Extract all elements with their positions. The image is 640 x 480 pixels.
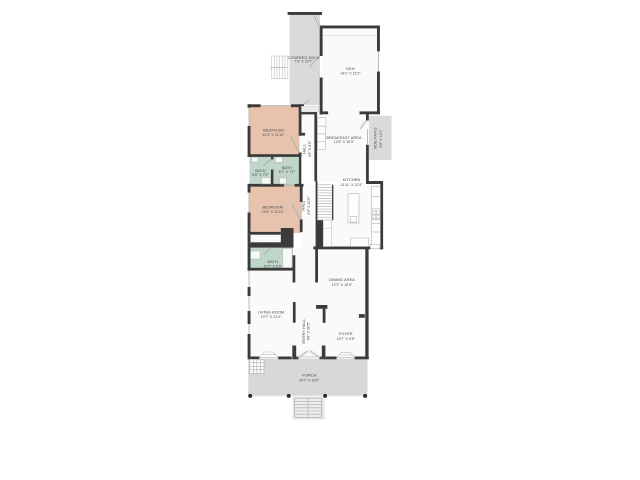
svg-text:6'8" X 26'5": 6'8" X 26'5" (307, 321, 311, 340)
svg-text:12'2" X 16'9": 12'2" X 16'9" (332, 283, 353, 287)
svg-text:KITCHEN: KITCHEN (343, 178, 361, 182)
svg-text:4'9" X 21'6": 4'9" X 21'6" (307, 196, 311, 215)
svg-text:12'6" X 10'3": 12'6" X 10'3" (334, 140, 355, 144)
svg-text:5'5" X 7'2": 5'5" X 7'2" (252, 173, 269, 177)
svg-text:BEDROOM: BEDROOM (263, 205, 284, 209)
svg-text:BEDROOM: BEDROOM (263, 129, 284, 133)
svg-text:HALL: HALL (302, 200, 306, 211)
svg-text:DEN: DEN (346, 67, 355, 71)
svg-text:10'7" X 5'3": 10'7" X 5'3" (263, 264, 282, 268)
svg-text:10'7" X 9'8": 10'7" X 9'8" (337, 337, 356, 341)
svg-text:BATH: BATH (255, 169, 265, 173)
svg-text:ENTRY HALL: ENTRY HALL (302, 318, 306, 343)
svg-text:HALL: HALL (302, 143, 306, 154)
svg-text:LIVING ROOM: LIVING ROOM (258, 310, 285, 314)
svg-text:7'9" X 22'7": 7'9" X 22'7" (294, 60, 313, 64)
svg-text:3'6" X 8'5": 3'6" X 8'5" (308, 140, 312, 157)
svg-text:14'1" X 21'2": 14'1" X 21'2" (340, 71, 361, 75)
svg-text:8'8" X 12'1": 8'8" X 12'1" (379, 128, 383, 147)
svg-text:10'7" X 21'4": 10'7" X 21'4" (261, 315, 282, 319)
svg-text:BATH: BATH (282, 166, 292, 170)
svg-text:DINING AREA: DINING AREA (329, 278, 355, 282)
svg-text:SIDE PATIO: SIDE PATIO (373, 127, 377, 149)
svg-text:PORCH: PORCH (302, 374, 317, 378)
svg-text:13'11" X 22'4": 13'11" X 22'4" (340, 183, 363, 187)
svg-text:FOYER: FOYER (339, 332, 353, 336)
svg-text:29'7" X 10'0": 29'7" X 10'0" (299, 379, 320, 383)
svg-text:6'7" X 7'2": 6'7" X 7'2" (279, 170, 296, 174)
svg-text:12'4" X 11'10": 12'4" X 11'10" (262, 133, 285, 137)
svg-text:12'4" X 11'10": 12'4" X 11'10" (262, 210, 285, 214)
